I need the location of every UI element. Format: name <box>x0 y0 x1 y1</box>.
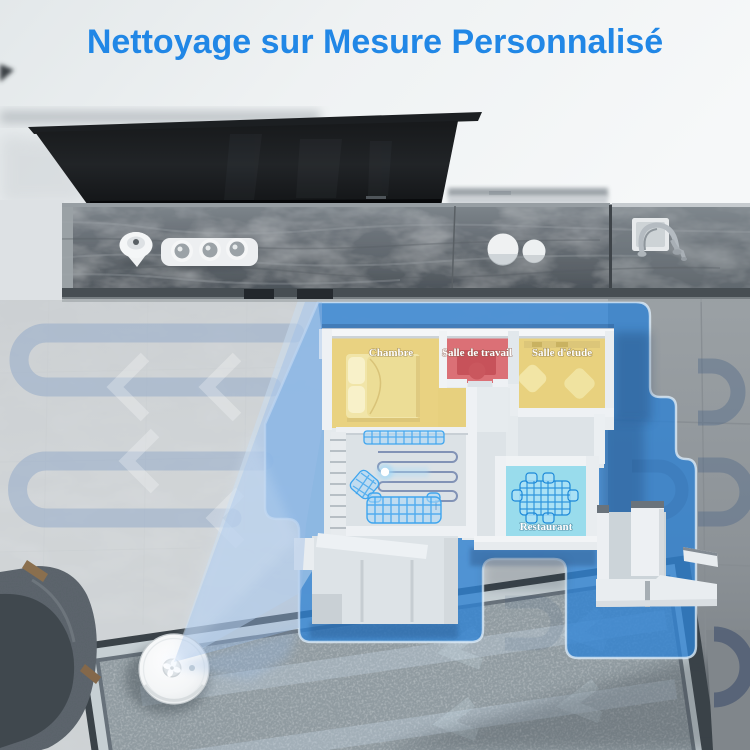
svg-text:Salle de travail: Salle de travail <box>442 347 512 359</box>
svg-text:Restaurant: Restaurant <box>520 521 573 533</box>
svg-text:Chambre: Chambre <box>369 347 414 359</box>
svg-text:Salle d'étude: Salle d'étude <box>532 347 592 359</box>
svg-text:Nettoyage sur Mesure Personnal: Nettoyage sur Mesure Personnalisé <box>87 23 663 61</box>
